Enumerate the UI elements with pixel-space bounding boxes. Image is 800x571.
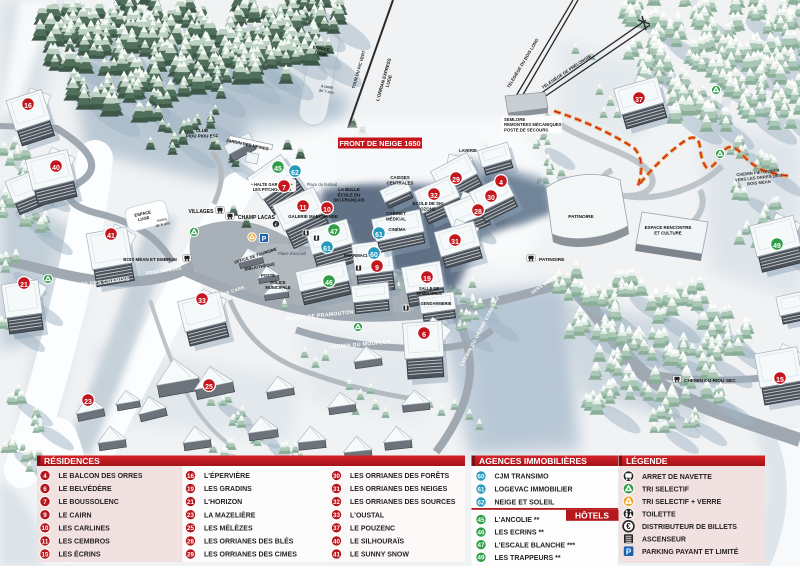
svg-text:PIOU PIOU ESF: PIOU PIOU ESF (186, 133, 219, 138)
svg-text:CINÉMA: CINÉMA (388, 227, 406, 232)
svg-text:ESPACE RENCONTRE: ESPACE RENCONTRE (645, 225, 692, 230)
svg-text:62: 62 (291, 170, 299, 177)
svg-text:GALERIE MARCHANDE: GALERIE MARCHANDE (288, 214, 338, 219)
svg-text:PARKING PAYANT ET LIMITÉ: PARKING PAYANT ET LIMITÉ (642, 547, 739, 556)
svg-text:€: € (274, 222, 277, 228)
svg-text:CHEMIN DU RIOU SEC: CHEMIN DU RIOU SEC (684, 378, 736, 384)
svg-text:ÉCOLE DU: ÉCOLE DU (338, 192, 361, 197)
svg-text:CABINET: CABINET (386, 211, 406, 216)
svg-text:9: 9 (375, 265, 379, 272)
svg-text:DISTRIBUTEUR DE BILLETS: DISTRIBUTEUR DE BILLETS (642, 524, 737, 531)
svg-text:CHAMP LACAS: CHAMP LACAS (238, 215, 276, 221)
svg-text:61: 61 (375, 232, 383, 239)
svg-text:TOILETTE: TOILETTE (642, 511, 676, 518)
svg-text:GENDARMERIE: GENDARMERIE (421, 301, 452, 306)
svg-text:23: 23 (187, 512, 194, 519)
svg-text:LÉGENDE: LÉGENDE (626, 456, 668, 466)
svg-text:11: 11 (42, 538, 49, 545)
svg-text:31: 31 (333, 486, 340, 493)
svg-text:62: 62 (478, 499, 485, 506)
svg-text:L'HORIZON: L'HORIZON (204, 499, 242, 506)
svg-text:POSTE: POSTE (261, 273, 275, 278)
svg-text:49: 49 (478, 555, 485, 562)
svg-text:60: 60 (370, 252, 378, 259)
svg-text:28: 28 (187, 538, 194, 545)
svg-text:LES GRADINS: LES GRADINS (204, 486, 252, 493)
svg-text:LES TRAPPEURS **: LES TRAPPEURS ** (495, 555, 561, 562)
svg-text:ÉCOLE DE SKI: ÉCOLE DE SKI (413, 201, 444, 206)
svg-text:PHARMACIE: PHARMACIE (344, 253, 371, 258)
svg-text:15: 15 (42, 551, 49, 558)
svg-text:10: 10 (42, 525, 49, 532)
svg-text:LES CEMBROS: LES CEMBROS (59, 539, 111, 546)
svg-text:31: 31 (451, 239, 459, 246)
svg-text:21: 21 (20, 282, 28, 289)
svg-text:OZONE: OZONE (420, 206, 436, 211)
svg-text:61: 61 (478, 486, 485, 493)
svg-text:23: 23 (84, 399, 92, 406)
svg-text:HÔTELS: HÔTELS (575, 510, 609, 521)
svg-text:PATINOIRE: PATINOIRE (568, 214, 594, 220)
svg-text:29: 29 (187, 551, 194, 558)
svg-text:37: 37 (333, 525, 340, 532)
svg-text:LES ORRIANES DES CIMES: LES ORRIANES DES CIMES (204, 552, 297, 559)
svg-text:45: 45 (478, 517, 485, 524)
svg-text:21: 21 (187, 499, 194, 506)
svg-text:61: 61 (323, 246, 331, 253)
svg-text:6: 6 (43, 486, 47, 493)
svg-text:MÉDICAL: MÉDICAL (386, 216, 406, 221)
svg-text:37: 37 (635, 97, 643, 104)
svg-text:LE SILHOURAÏS: LE SILHOURAÏS (350, 538, 404, 546)
svg-text:L'ESCALE BLANCHE ***: L'ESCALE BLANCHE *** (495, 542, 576, 549)
svg-text:P: P (626, 547, 632, 556)
svg-text:Place d'accueil: Place d'accueil (278, 251, 306, 256)
svg-text:MUNICIPALE: MUNICIPALE (265, 285, 290, 290)
svg-text:LE BELVÉDÈRE: LE BELVÉDÈRE (59, 484, 112, 493)
svg-text:FRONT DE NEIGE 1650: FRONT DE NEIGE 1650 (339, 139, 420, 148)
svg-text:32: 32 (333, 499, 340, 506)
svg-text:L'ÉPERVIÈRE: L'ÉPERVIÈRE (204, 471, 250, 480)
svg-text:33: 33 (198, 298, 206, 305)
svg-text:LOGEVAC IMMOBILIER: LOGEVAC IMMOBILIER (495, 487, 573, 494)
svg-text:LE POUZENC: LE POUZENC (350, 525, 395, 532)
svg-text:9: 9 (43, 512, 47, 519)
svg-text:RÉSIDENCES: RÉSIDENCES (44, 456, 100, 466)
svg-text:7: 7 (43, 499, 47, 506)
svg-text:29: 29 (452, 177, 460, 184)
svg-text:CLUB: CLUB (196, 128, 208, 133)
svg-text:4: 4 (43, 473, 47, 480)
svg-text:4: 4 (499, 180, 503, 187)
svg-text:47: 47 (330, 229, 338, 236)
svg-text:LES ECRINS **: LES ECRINS ** (495, 530, 545, 537)
svg-text:15: 15 (776, 377, 784, 384)
svg-text:L'ANCOLIE **: L'ANCOLIE ** (495, 517, 540, 524)
svg-text:LE SUNNY SNOW: LE SUNNY SNOW (350, 552, 409, 559)
svg-text:TRI SELECTIF: TRI SELECTIF (642, 486, 690, 493)
svg-text:LA BULLE: LA BULLE (338, 187, 360, 192)
svg-text:16: 16 (187, 473, 194, 480)
svg-text:47: 47 (478, 542, 485, 549)
svg-text:40: 40 (52, 165, 60, 172)
svg-text:P: P (262, 236, 267, 243)
svg-text:CJM TRANSIMO: CJM TRANSIMO (495, 474, 550, 481)
svg-text:32: 32 (430, 193, 438, 200)
svg-text:VILLAGES: VILLAGES (188, 209, 214, 215)
svg-text:25: 25 (187, 525, 194, 532)
svg-text:LES ORRIANES DES SOURCES: LES ORRIANES DES SOURCES (350, 499, 456, 506)
svg-text:LE CAIRN: LE CAIRN (59, 512, 92, 519)
svg-text:46: 46 (325, 280, 333, 287)
svg-text:10: 10 (323, 207, 331, 214)
svg-text:60: 60 (478, 473, 485, 480)
svg-text:TRI SELECTIF + VERRE: TRI SELECTIF + VERRE (642, 499, 721, 506)
svg-text:ET CULTURE: ET CULTURE (654, 230, 682, 235)
svg-text:ARRET DE NAVETTE: ARRET DE NAVETTE (642, 474, 712, 481)
svg-text:LES ORRIANES DES FORÊTS: LES ORRIANES DES FORÊTS (350, 471, 450, 480)
svg-text:ASCENSEUR: ASCENSEUR (642, 536, 686, 543)
svg-text:LES ORRIANES DES NEIGES: LES ORRIANES DES NEIGES (350, 486, 448, 493)
svg-text:11: 11 (299, 205, 306, 212)
svg-text:NEIGE ET SOLEIL: NEIGE ET SOLEIL (495, 500, 556, 507)
svg-text:16: 16 (24, 103, 32, 110)
svg-text:19: 19 (423, 276, 431, 283)
svg-text:40: 40 (333, 538, 340, 545)
svg-text:LE BOUSSOLENC: LE BOUSSOLENC (59, 499, 119, 506)
svg-text:28: 28 (474, 209, 482, 216)
svg-text:LES ÉCRINS: LES ÉCRINS (59, 550, 101, 559)
svg-text:PATINOIRE: PATINOIRE (539, 257, 565, 263)
svg-text:41: 41 (333, 551, 340, 558)
svg-text:49: 49 (773, 243, 781, 250)
svg-text:SKI FRANÇAIS: SKI FRANÇAIS (333, 198, 364, 203)
svg-text:LA MAZELIÈRE: LA MAZELIÈRE (204, 510, 256, 519)
svg-text:LE BALCON DES ORRES: LE BALCON DES ORRES (59, 473, 143, 480)
svg-text:46: 46 (478, 530, 485, 537)
svg-text:POSTE DE SECOURS: POSTE DE SECOURS (504, 127, 548, 132)
svg-text:€: € (626, 522, 631, 531)
svg-text:LAVERIE: LAVERIE (459, 148, 477, 153)
svg-text:41: 41 (107, 233, 115, 240)
svg-text:6: 6 (422, 332, 426, 339)
svg-text:CENTRALES: CENTRALES (387, 180, 414, 185)
svg-text:30: 30 (487, 195, 495, 202)
svg-text:33: 33 (333, 512, 340, 519)
svg-text:Place du festival: Place du festival (307, 182, 338, 187)
svg-text:BOIS MÉAN ET EMBRUN: BOIS MÉAN ET EMBRUN (123, 255, 177, 262)
svg-text:7: 7 (282, 185, 286, 192)
svg-text:L'OUSTAL: L'OUSTAL (350, 512, 385, 519)
svg-text:25: 25 (205, 384, 213, 391)
svg-text:30: 30 (333, 473, 340, 480)
svg-text:LES ORRIANES DES BLÉS: LES ORRIANES DES BLÉS (204, 537, 294, 546)
svg-text:LES CARLINES: LES CARLINES (59, 525, 111, 532)
svg-text:45: 45 (274, 166, 282, 173)
svg-text:CAISSES: CAISSES (390, 175, 409, 180)
svg-text:SÉMINAIRES: SÉMINAIRES (416, 291, 442, 296)
svg-text:AGENCES IMMOBILIÈRES: AGENCES IMMOBILIÈRES (479, 456, 587, 466)
svg-text:LES MÉLÈZES: LES MÉLÈZES (204, 523, 253, 532)
svg-text:19: 19 (187, 486, 194, 493)
